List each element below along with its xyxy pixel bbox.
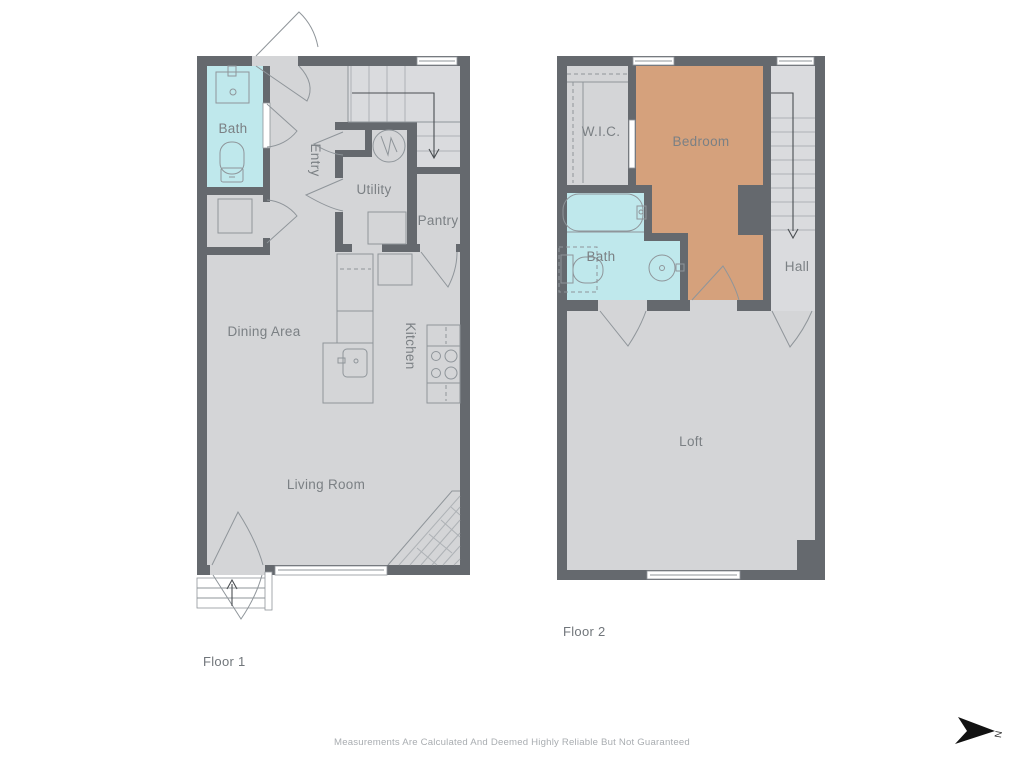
room-label-kitchen: Kitchen bbox=[403, 322, 418, 369]
room-label-dining: Dining Area bbox=[227, 324, 300, 339]
room-label-bath2: Bath bbox=[587, 249, 616, 264]
floorplan-page: Bath Entry Utility Pantry Dining Area Ki… bbox=[0, 0, 1024, 768]
door-opening bbox=[690, 300, 737, 311]
window bbox=[417, 57, 457, 65]
room-label-utility: Utility bbox=[356, 182, 391, 197]
room-label-bedroom: Bedroom bbox=[673, 134, 730, 149]
stairs-landing bbox=[417, 122, 460, 167]
wall bbox=[335, 122, 343, 130]
wall-chase bbox=[738, 185, 763, 235]
door-opening bbox=[770, 300, 815, 311]
wall bbox=[460, 56, 470, 575]
door-opening bbox=[598, 300, 647, 311]
north-label: N bbox=[991, 730, 1003, 739]
window bbox=[777, 57, 814, 65]
wall bbox=[263, 238, 270, 255]
door-swing bbox=[256, 12, 318, 56]
room-label-hall: Hall bbox=[785, 259, 809, 274]
wall bbox=[557, 56, 567, 580]
door-opening bbox=[352, 244, 382, 252]
door-opening bbox=[210, 565, 265, 575]
window bbox=[633, 57, 674, 65]
compass: N bbox=[955, 717, 1003, 744]
wall bbox=[763, 66, 771, 311]
wall bbox=[263, 148, 270, 187]
wall bbox=[335, 122, 407, 130]
wall bbox=[343, 150, 372, 157]
room-label-loft: Loft bbox=[679, 434, 703, 449]
wall-chase bbox=[797, 540, 825, 580]
floor2-title: Floor 2 bbox=[563, 624, 606, 639]
wall bbox=[197, 187, 270, 195]
door-leaf bbox=[265, 572, 272, 610]
wall bbox=[557, 185, 652, 193]
room-label-bath: Bath bbox=[219, 121, 248, 136]
floorplan-canvas: Bath Entry Utility Pantry Dining Area Ki… bbox=[0, 0, 1024, 768]
disclaimer-text: Measurements Are Calculated And Deemed H… bbox=[334, 737, 690, 748]
window bbox=[275, 566, 387, 575]
room-label-living: Living Room bbox=[287, 477, 365, 492]
door-leaf bbox=[263, 103, 270, 148]
floor2-plan: W.I.C. Bedroom Bath Hall Loft Floor 2 bbox=[557, 56, 825, 639]
room-label-pantry: Pantry bbox=[418, 213, 459, 228]
wall bbox=[407, 122, 417, 252]
wall bbox=[407, 167, 460, 174]
floor1-plan: Bath Entry Utility Pantry Dining Area Ki… bbox=[197, 12, 470, 669]
room-label-entry: Entry bbox=[308, 143, 323, 176]
stairs-area bbox=[348, 66, 460, 122]
wall bbox=[644, 233, 688, 241]
floor1-title: Floor 1 bbox=[203, 654, 246, 669]
north-arrow-icon bbox=[955, 717, 995, 744]
door-opening bbox=[420, 244, 456, 252]
wall bbox=[197, 247, 270, 255]
room-label-wic: W.I.C. bbox=[582, 124, 621, 139]
wall bbox=[815, 56, 825, 580]
door-leaf bbox=[629, 120, 635, 168]
door-opening bbox=[252, 56, 298, 66]
window bbox=[647, 571, 740, 579]
bath-room bbox=[567, 193, 644, 300]
wall bbox=[197, 56, 207, 575]
